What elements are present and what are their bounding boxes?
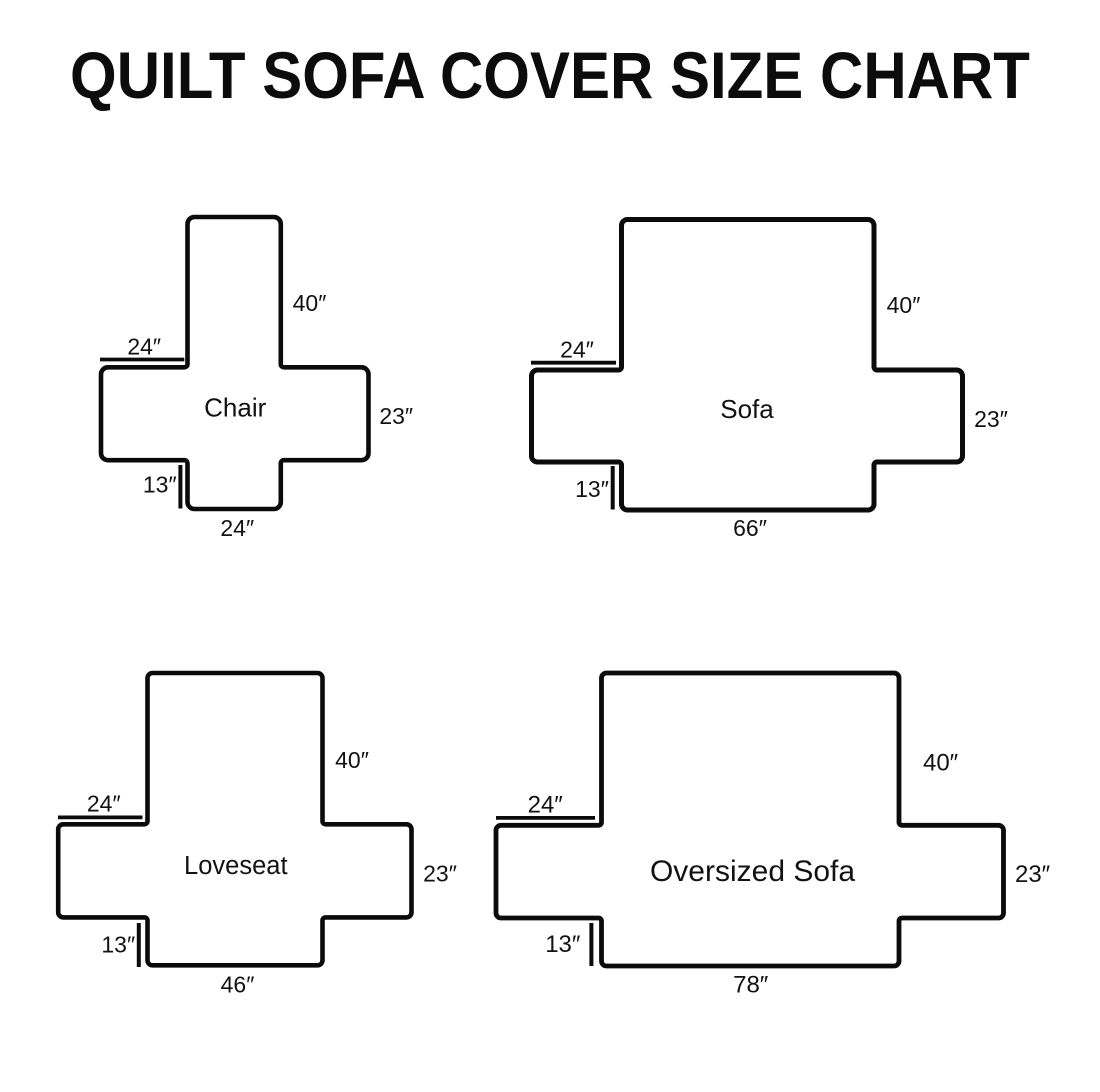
svg-text:40″: 40″ [293,290,327,316]
svg-text:40″: 40″ [335,747,369,773]
svg-text:Chair: Chair [204,393,266,423]
svg-text:78″: 78″ [733,971,769,998]
svg-text:24″: 24″ [127,334,161,360]
svg-text:40″: 40″ [923,749,959,776]
svg-text:24″: 24″ [87,791,121,817]
svg-text:23″: 23″ [379,403,413,429]
svg-text:46″: 46″ [221,972,255,998]
svg-text:66″: 66″ [733,515,767,541]
svg-text:40″: 40″ [887,292,921,318]
svg-text:13″: 13″ [545,931,581,958]
svg-text:13″: 13″ [575,476,609,502]
svg-text:23″: 23″ [423,861,457,887]
svg-text:13″: 13″ [101,932,135,958]
svg-text:QUILT SOFA COVER SIZE CHART: QUILT SOFA COVER SIZE CHART [70,39,1030,112]
svg-text:23″: 23″ [1015,861,1051,888]
svg-text:13″: 13″ [143,472,177,498]
svg-text:Sofa: Sofa [720,394,774,424]
svg-text:23″: 23″ [974,406,1008,432]
svg-text:24″: 24″ [220,515,254,541]
svg-text:24″: 24″ [528,792,564,819]
svg-text:Loveseat: Loveseat [184,852,288,880]
svg-text:Oversized Sofa: Oversized Sofa [650,855,855,888]
svg-text:24″: 24″ [560,337,594,363]
